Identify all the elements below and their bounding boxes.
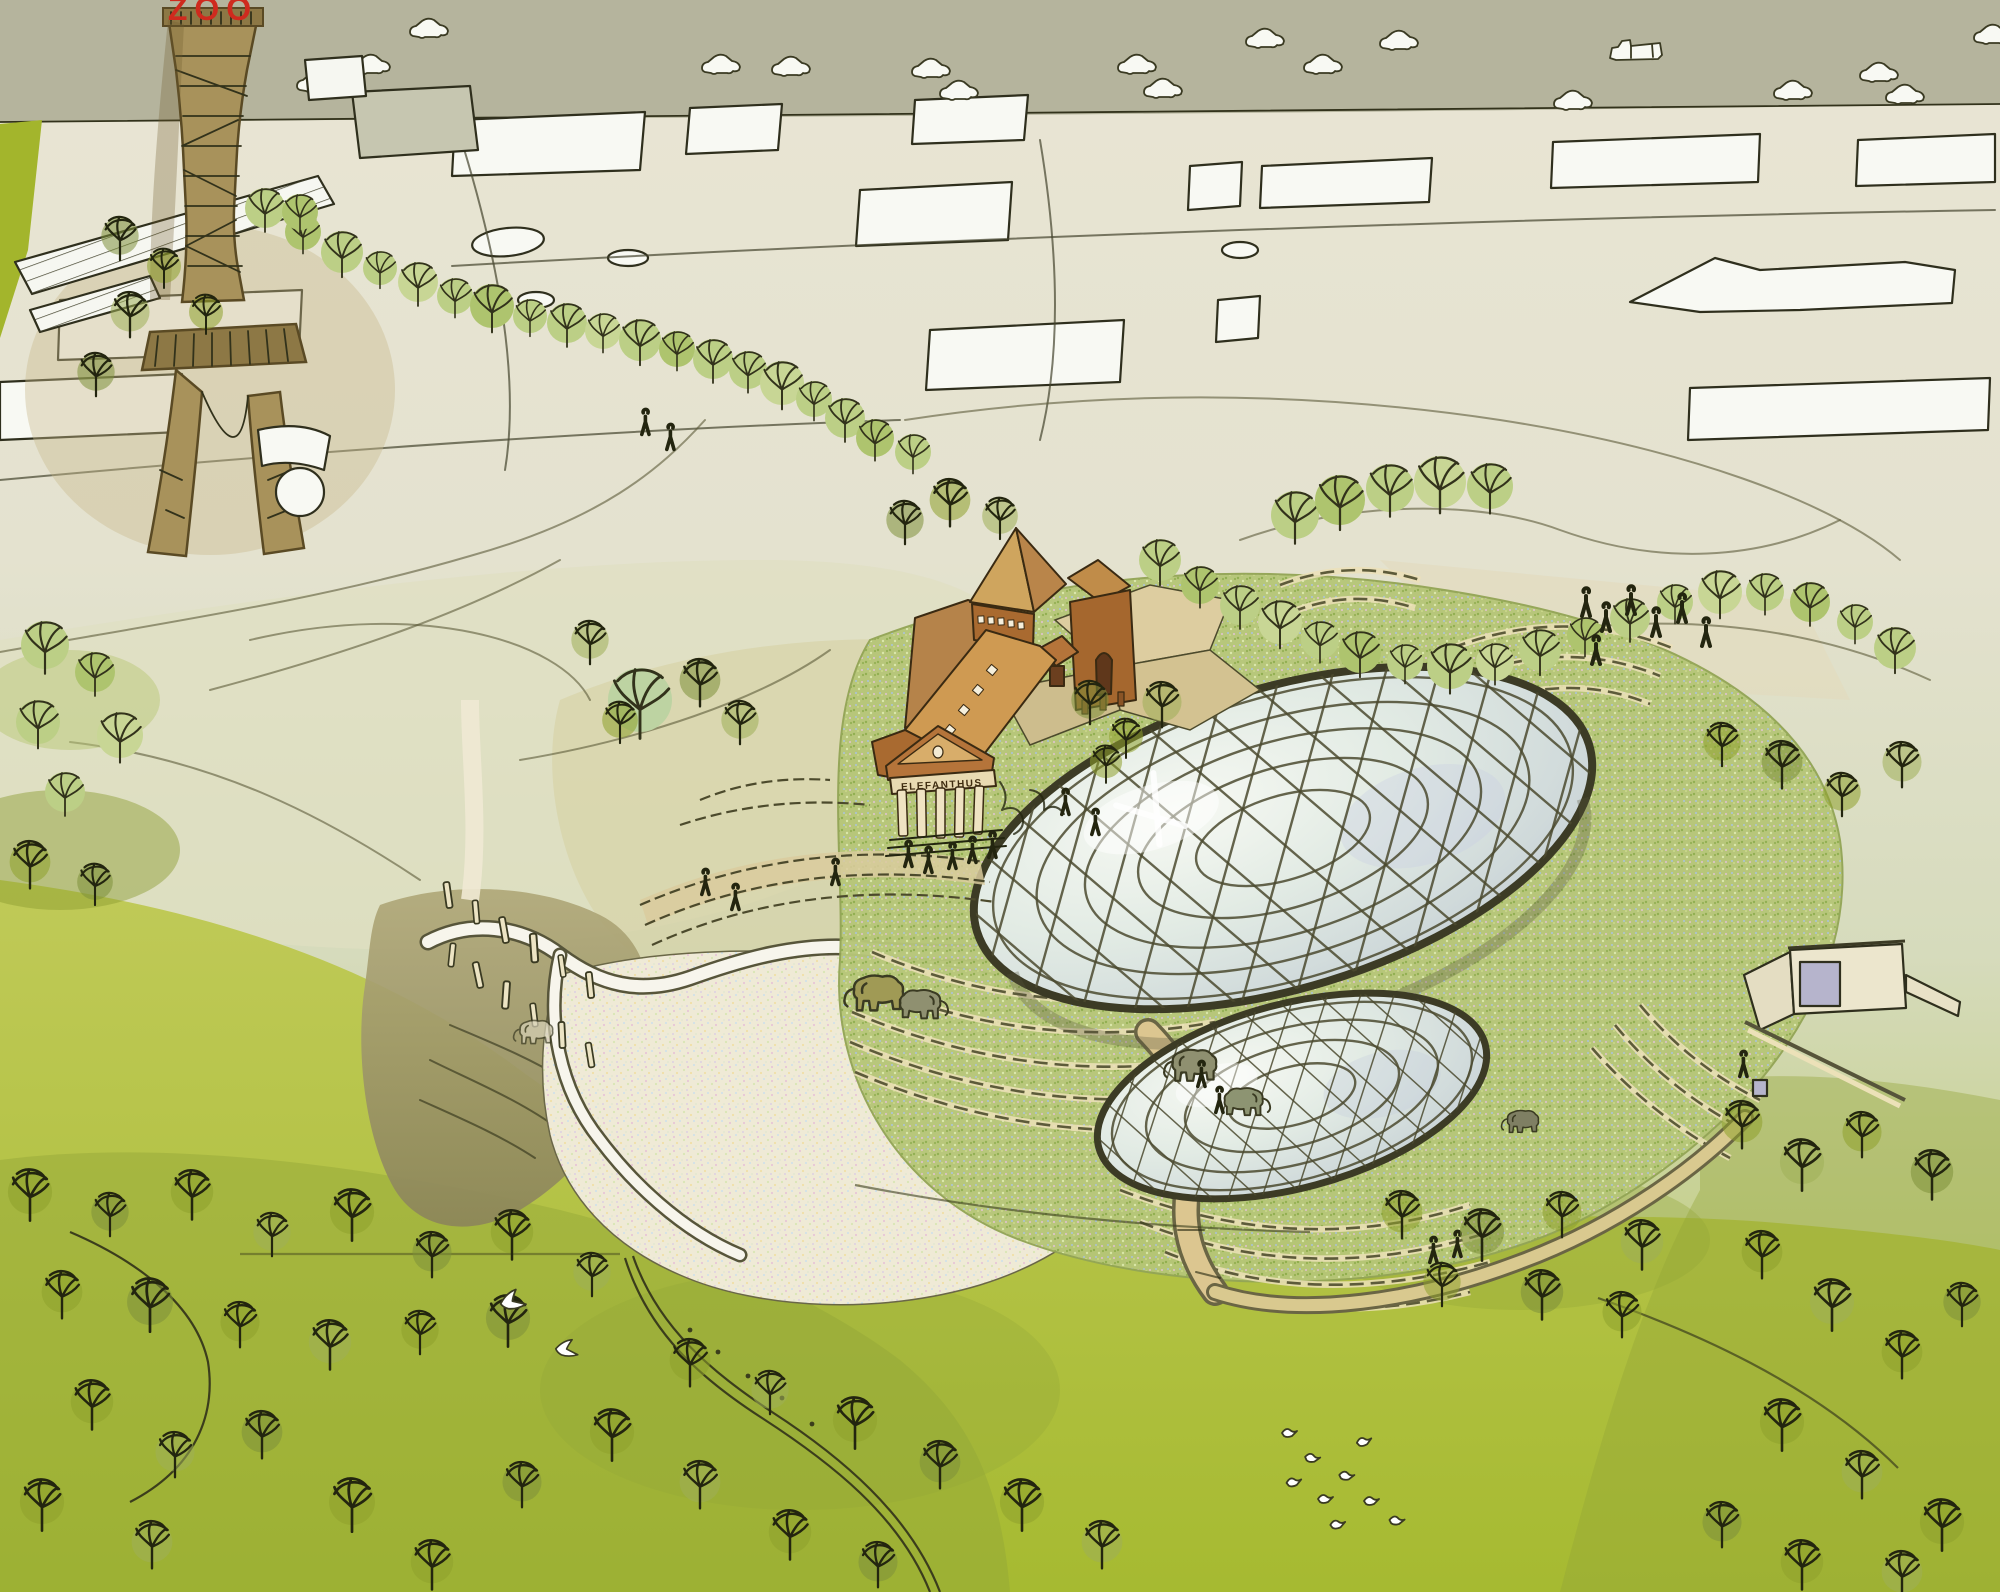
base-pavilion [258, 426, 330, 470]
city-block [1856, 134, 1995, 186]
column [917, 789, 927, 837]
pond [1222, 242, 1258, 258]
column [973, 786, 984, 834]
entry-walk [470, 700, 474, 900]
wood-post [530, 934, 539, 963]
city-block [452, 112, 645, 176]
city-block [926, 320, 1124, 390]
base-pavilion-round [276, 468, 324, 516]
city-block [856, 182, 1012, 246]
city-block [1688, 378, 1990, 440]
city-block [1260, 158, 1432, 208]
mid-door [1050, 666, 1064, 686]
city-block [1551, 134, 1760, 188]
aerial-sketch-canvas: ZOO [0, 0, 2000, 1592]
white-roof [305, 56, 366, 100]
column [897, 790, 908, 836]
wood-post [558, 1022, 565, 1048]
wood-post [472, 900, 479, 924]
grey-building [352, 86, 478, 158]
forest-underblob [540, 1270, 1060, 1510]
city-block [912, 95, 1028, 144]
zoo-sign-text: ZOO [168, 0, 258, 27]
hatch-window [1753, 1080, 1767, 1096]
column [936, 788, 945, 838]
city-block [1188, 162, 1242, 210]
city-block [1216, 296, 1260, 342]
oculus [933, 746, 943, 758]
service-window [1800, 962, 1840, 1006]
city-block [686, 104, 782, 154]
column [955, 787, 965, 837]
tower-platform [142, 324, 306, 370]
wood-post [502, 981, 510, 1009]
